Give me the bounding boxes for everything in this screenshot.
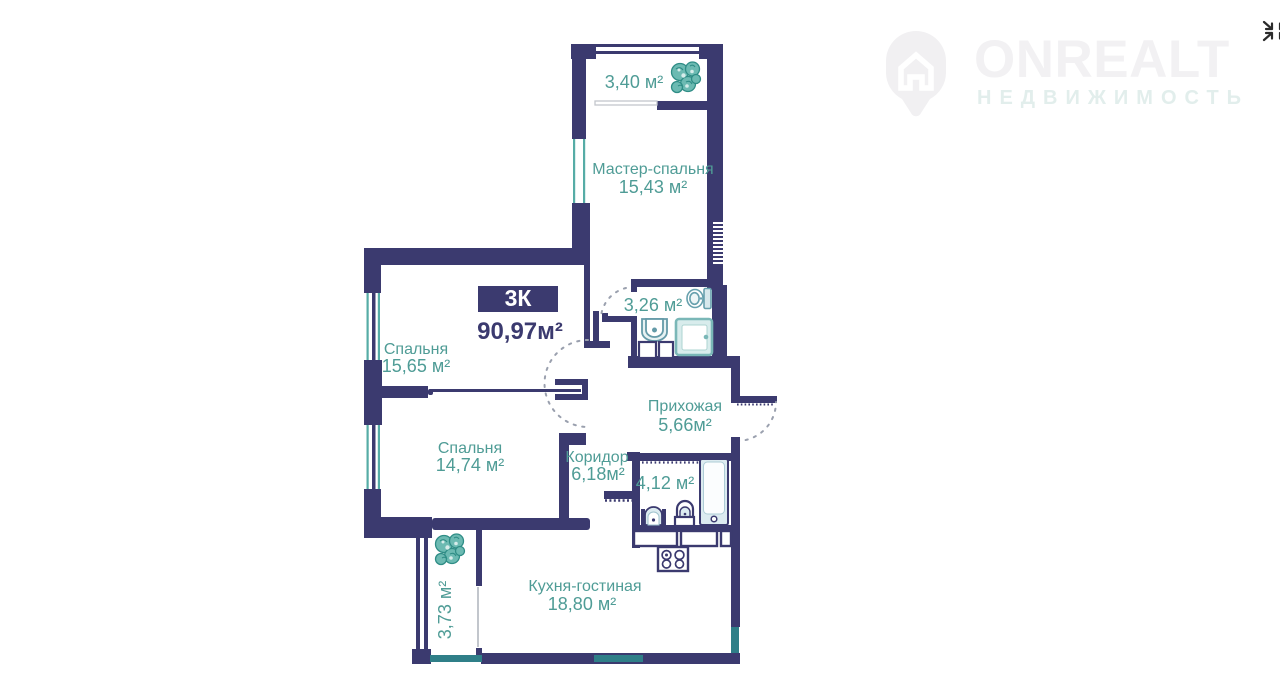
svg-text:6,18м²: 6,18м² [571,464,624,484]
svg-text:4,12 м²: 4,12 м² [636,473,694,493]
svg-text:18,80 м²: 18,80 м² [548,594,616,614]
svg-text:5,66м²: 5,66м² [658,415,711,435]
svg-text:15,43 м²: 15,43 м² [619,177,687,197]
svg-text:Мастер-спальня: Мастер-спальня [592,161,713,178]
svg-text:14,74 м²: 14,74 м² [436,455,504,475]
svg-text:3,26 м²: 3,26 м² [624,295,682,315]
svg-text:3,40 м²: 3,40 м² [605,72,663,92]
svg-text:15,65 м²: 15,65 м² [382,356,450,376]
svg-text:Кухня-гостиная: Кухня-гостиная [528,578,641,595]
svg-text:3К: 3К [505,285,533,311]
svg-text:НЕДВИЖИМОСТЬ: НЕДВИЖИМОСТЬ [977,87,1249,109]
svg-text:3,73 м²: 3,73 м² [435,581,455,639]
svg-text:Прихожая: Прихожая [648,398,722,415]
svg-text:90,97м²: 90,97м² [477,318,563,345]
svg-text:ONREALT: ONREALT [974,30,1230,89]
